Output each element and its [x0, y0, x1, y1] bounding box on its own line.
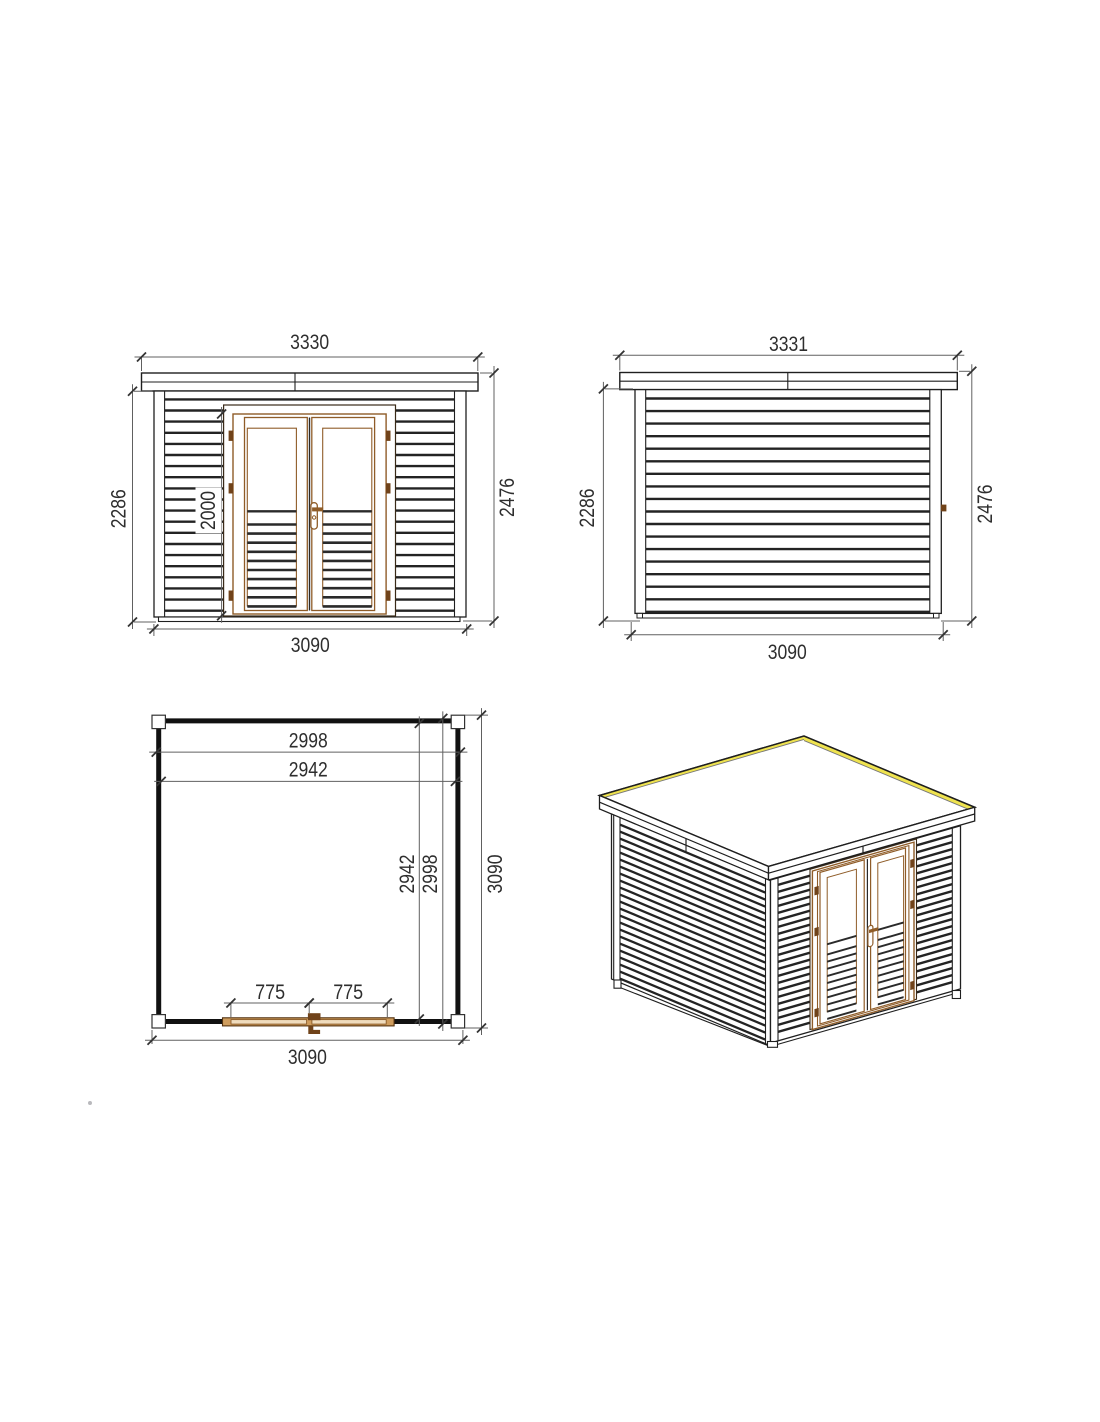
svg-text:2942: 2942: [396, 855, 419, 894]
svg-text:3090: 3090: [291, 634, 330, 657]
svg-text:2476: 2476: [496, 478, 519, 517]
svg-text:3090: 3090: [288, 1046, 327, 1069]
svg-text:3090: 3090: [768, 641, 807, 664]
svg-text:775: 775: [333, 981, 363, 1004]
svg-text:3331: 3331: [769, 333, 808, 356]
svg-text:2476: 2476: [974, 485, 997, 524]
svg-text:3090: 3090: [484, 855, 507, 894]
svg-text:2998: 2998: [419, 855, 442, 894]
svg-text:2000: 2000: [197, 491, 220, 530]
svg-text:3330: 3330: [290, 331, 329, 354]
svg-text:2286: 2286: [576, 489, 599, 528]
svg-text:2286: 2286: [108, 489, 131, 528]
svg-text:775: 775: [255, 981, 285, 1004]
svg-text:2942: 2942: [289, 759, 328, 782]
svg-text:2998: 2998: [289, 729, 328, 752]
